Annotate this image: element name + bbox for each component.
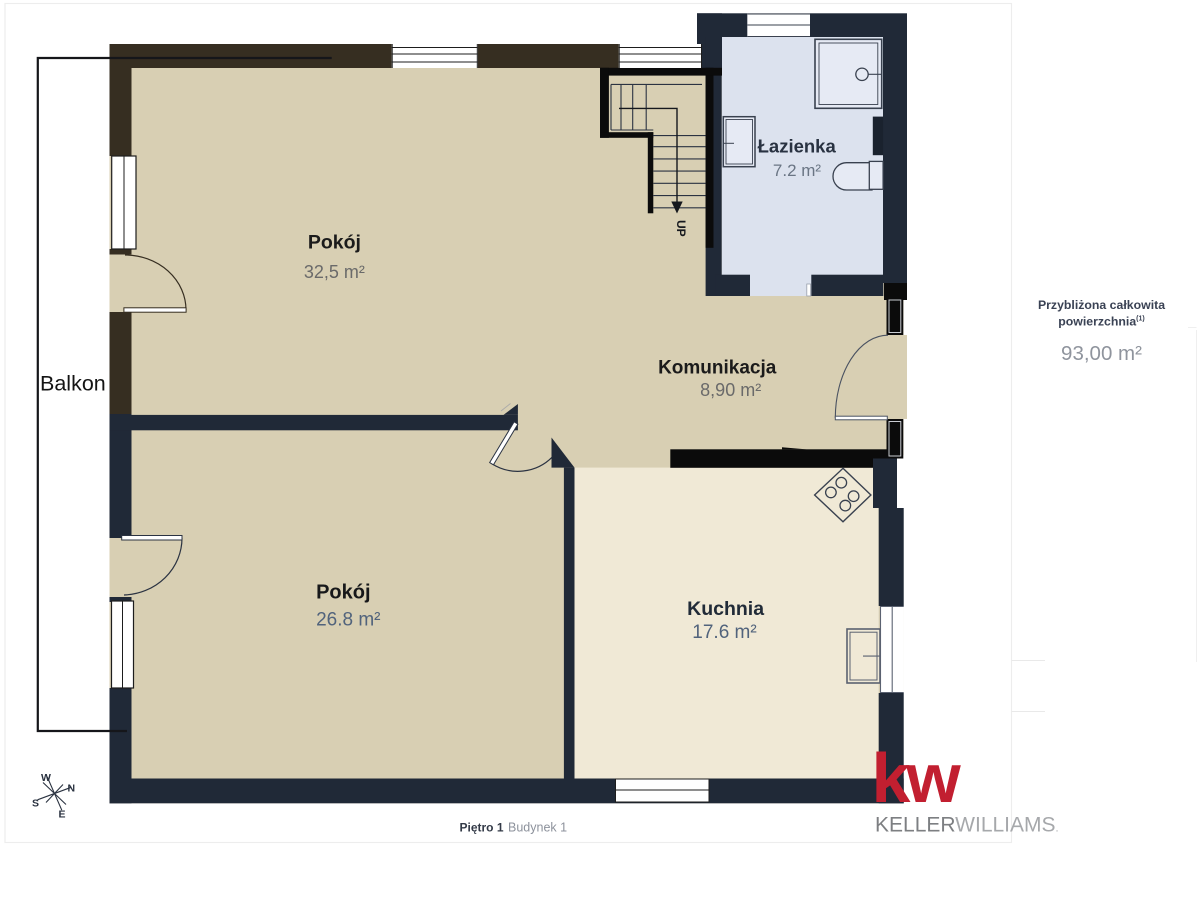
svg-text:Balkon: Balkon xyxy=(40,372,106,396)
svg-text:E: E xyxy=(59,809,66,821)
svg-text:8,90 m²: 8,90 m² xyxy=(700,380,761,400)
svg-text:powierzchnia(1): powierzchnia(1) xyxy=(1058,315,1144,329)
svg-text:Przybliżona całkowita: Przybliżona całkowita xyxy=(1038,298,1165,312)
svg-text:KELLERWILLIAMS.: KELLERWILLIAMS. xyxy=(875,814,1059,837)
svg-text:26.8 m²: 26.8 m² xyxy=(316,609,380,630)
svg-text:N: N xyxy=(68,783,76,795)
svg-text:Piętro 1: Piętro 1 xyxy=(460,821,504,835)
svg-text:93,00 m²: 93,00 m² xyxy=(1061,342,1142,365)
svg-text:Łazienka: Łazienka xyxy=(758,136,837,157)
svg-text:Budynek 1: Budynek 1 xyxy=(508,821,567,835)
svg-text:32,5 m²: 32,5 m² xyxy=(304,262,365,282)
svg-text:Komunikacja: Komunikacja xyxy=(658,357,777,378)
svg-text:W: W xyxy=(41,772,51,784)
svg-text:Pokój: Pokój xyxy=(316,582,370,604)
svg-text:Kuchnia: Kuchnia xyxy=(687,598,764,620)
svg-text:kw: kw xyxy=(872,739,962,817)
svg-text:S: S xyxy=(32,798,39,810)
svg-text:Pokój: Pokój xyxy=(308,232,361,254)
svg-text:7.2 m²: 7.2 m² xyxy=(773,161,822,180)
svg-text:UP: UP xyxy=(674,220,688,237)
svg-text:17.6 m²: 17.6 m² xyxy=(692,622,756,643)
